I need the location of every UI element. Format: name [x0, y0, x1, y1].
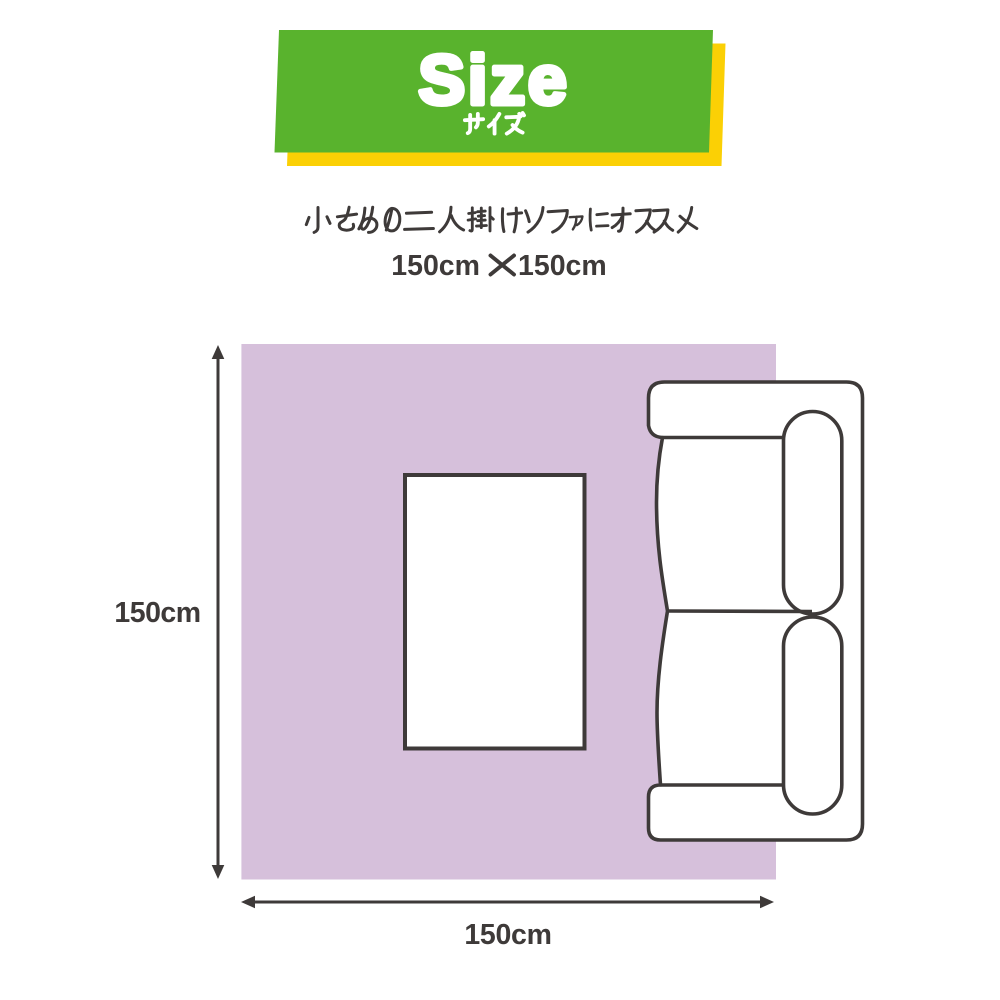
- svg-text:150cm: 150cm: [391, 250, 480, 282]
- svg-text:150cm: 150cm: [518, 250, 607, 282]
- svg-text:150cm: 150cm: [464, 919, 551, 951]
- svg-text:150cm: 150cm: [114, 597, 200, 629]
- svg-text:Size: Size: [418, 41, 569, 119]
